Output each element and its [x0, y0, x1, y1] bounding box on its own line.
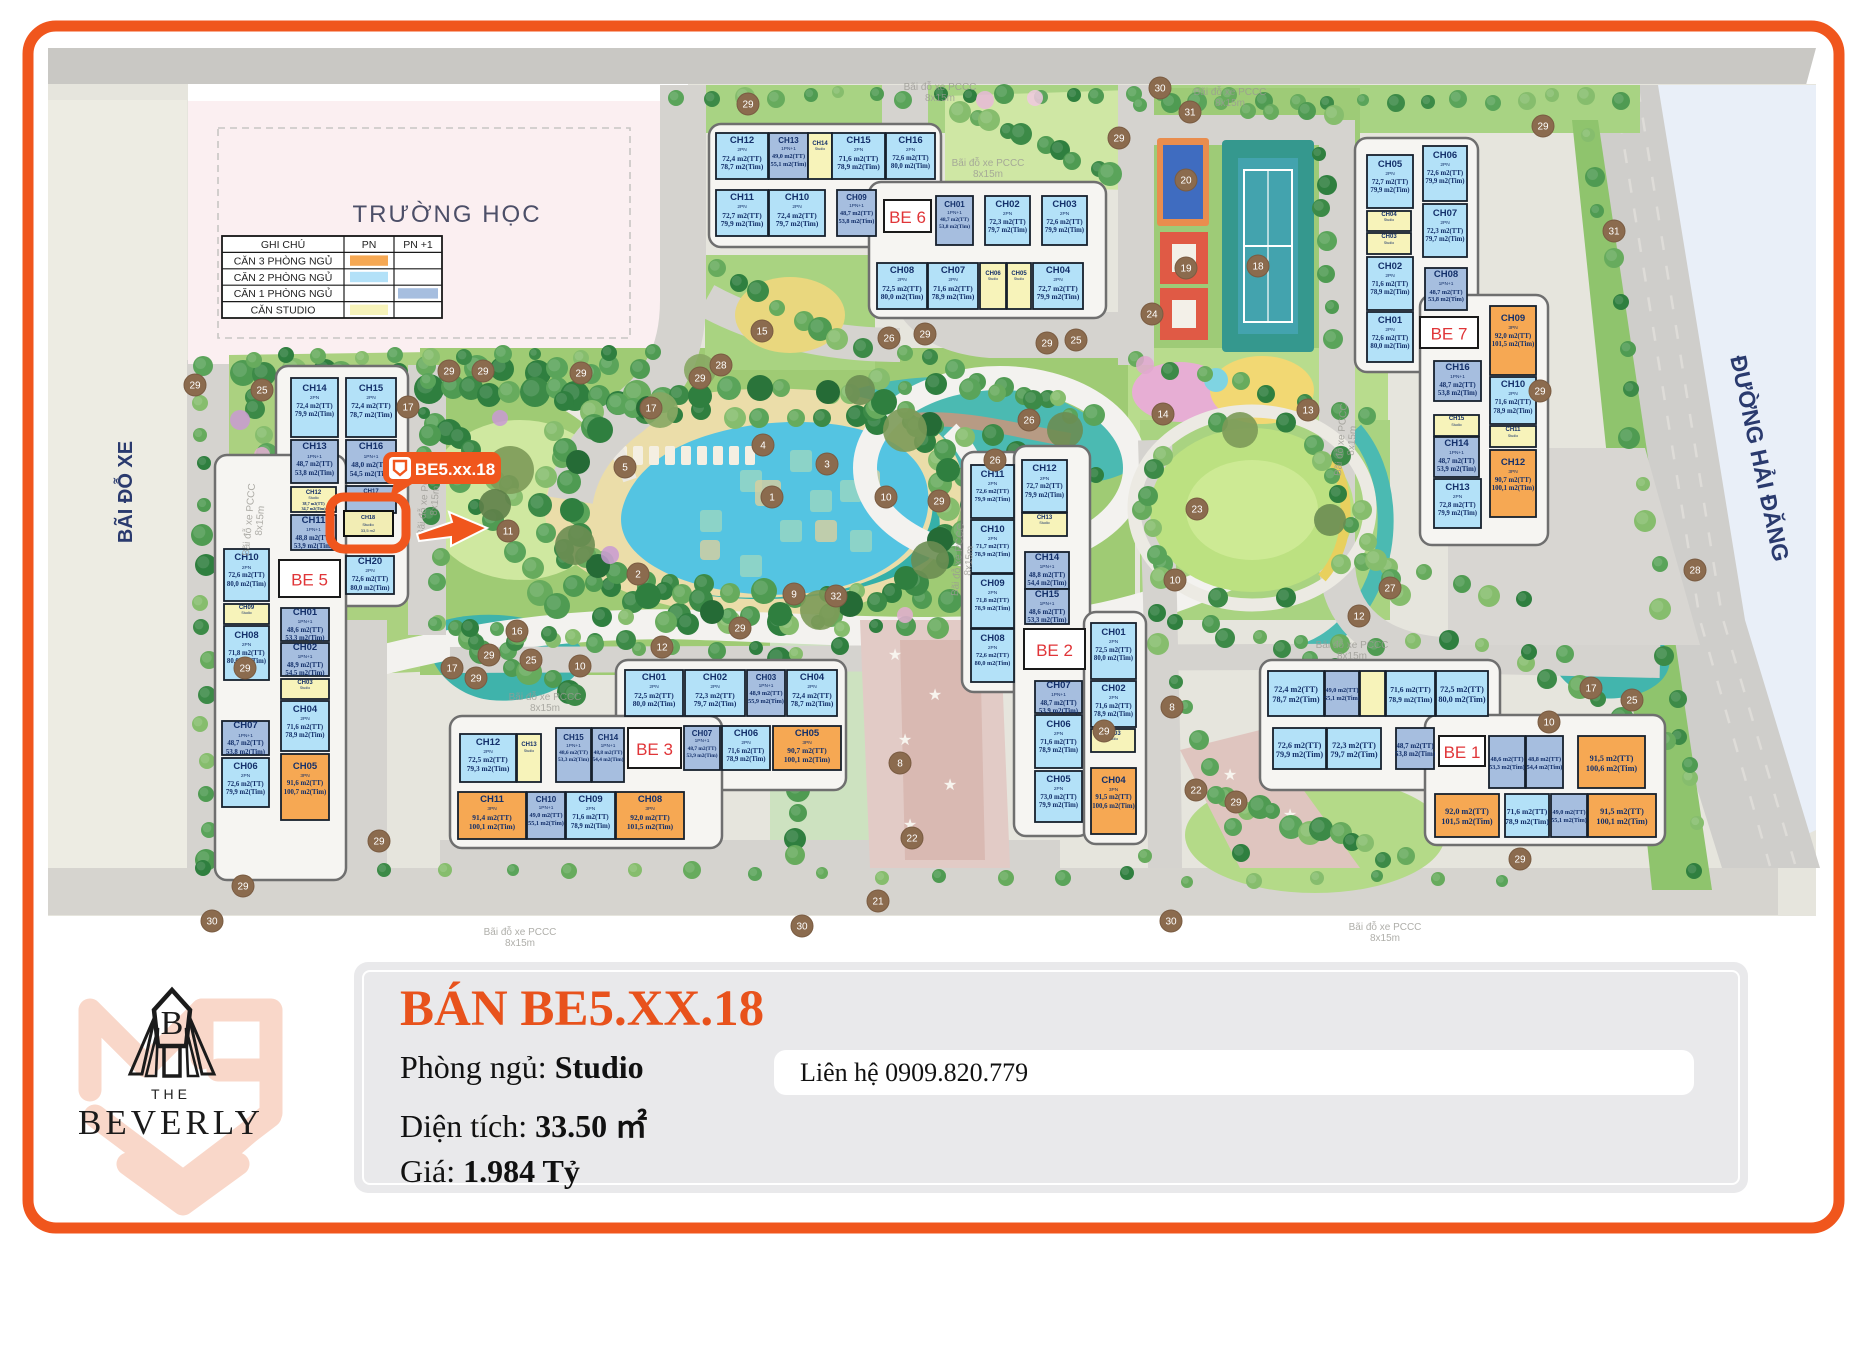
svg-text:72,6 m2(TT): 72,6 m2(TT) — [892, 155, 928, 162]
svg-text:91,4 m2(TT): 91,4 m2(TT) — [472, 813, 512, 822]
svg-text:1PN+1: 1PN+1 — [1449, 450, 1464, 456]
svg-text:71,6 m2(TT): 71,6 m2(TT) — [728, 748, 764, 755]
svg-text:CH04: CH04 — [293, 704, 318, 715]
svg-text:2PN: 2PN — [1060, 211, 1070, 217]
svg-text:CĂN 2 PHÒNG NGỦ: CĂN 2 PHÒNG NGỦ — [234, 271, 333, 284]
svg-text:33,5 m2: 33,5 m2 — [361, 528, 376, 533]
svg-text:78,9 m2(Tim): 78,9 m2(Tim) — [1370, 289, 1409, 296]
svg-text:CH10: CH10 — [536, 795, 557, 804]
svg-text:100,6 m2(Tim): 100,6 m2(Tim) — [1092, 803, 1135, 810]
svg-text:CĂN STUDIO: CĂN STUDIO — [251, 304, 316, 317]
svg-text:72,7 m2(TT): 72,7 m2(TT) — [1026, 483, 1062, 490]
svg-text:20: 20 — [1180, 176, 1192, 187]
svg-text:8x15m: 8x15m — [1370, 933, 1400, 944]
svg-text:53,9 m2(Tim): 53,9 m2(Tim) — [1039, 708, 1078, 715]
svg-text:2PN: 2PN — [1054, 731, 1064, 737]
svg-text:79,9 m2(Tim): 79,9 m2(Tim) — [1039, 802, 1078, 809]
svg-text:79,7 m2(Tim): 79,7 m2(Tim) — [694, 699, 737, 708]
svg-text:80,0 m2(Tim): 80,0 m2(Tim) — [227, 581, 266, 588]
svg-text:72,6 m2(TT): 72,6 m2(TT) — [976, 652, 1009, 659]
svg-text:32: 32 — [830, 592, 842, 603]
svg-text:2PN: 2PN — [241, 773, 251, 779]
svg-text:CH03: CH03 — [756, 673, 777, 682]
svg-text:72,8 m2(TT): 72,8 m2(TT) — [1439, 502, 1475, 509]
svg-text:54,4 m2(Tim): 54,4 m2(Tim) — [1527, 764, 1563, 771]
svg-text:CH03: CH03 — [1052, 199, 1076, 210]
svg-text:2PN: 2PN — [897, 277, 907, 283]
svg-text:CH15: CH15 — [1449, 416, 1465, 422]
svg-text:Bãi đỗ xe PCCC: Bãi đỗ xe PCCC — [509, 690, 582, 703]
svg-text:79,9 m2(Tim): 79,9 m2(Tim) — [721, 219, 764, 228]
svg-text:90,7 m2(TT): 90,7 m2(TT) — [787, 746, 827, 755]
svg-text:78,9 m2(Tim): 78,9 m2(Tim) — [571, 823, 610, 830]
svg-text:29: 29 — [1041, 339, 1053, 350]
svg-text:BE 3: BE 3 — [636, 740, 673, 759]
svg-text:CĂN 1 PHÒNG NGỦ: CĂN 1 PHÒNG NGỦ — [234, 287, 333, 300]
svg-text:72,6 m2(TT): 72,6 m2(TT) — [1372, 335, 1408, 342]
svg-text:★: ★ — [888, 647, 902, 664]
svg-text:17: 17 — [645, 404, 657, 415]
svg-text:CH02: CH02 — [1101, 683, 1125, 694]
svg-text:71,6 m2(TT): 71,6 m2(TT) — [1507, 807, 1548, 816]
svg-text:2PN: 2PN — [586, 806, 596, 812]
svg-text:10: 10 — [574, 662, 586, 673]
svg-text:BÃI ĐỖ XE: BÃI ĐỖ XE — [113, 441, 137, 543]
svg-text:CH14: CH14 — [1444, 438, 1469, 449]
svg-text:30: 30 — [1154, 84, 1166, 95]
svg-text:5: 5 — [622, 463, 628, 474]
svg-text:2PN: 2PN — [1453, 494, 1463, 500]
svg-text:55,1 m2(Tim): 55,1 m2(Tim) — [1324, 695, 1360, 702]
svg-text:CH16: CH16 — [898, 135, 922, 146]
svg-text:1PN+1: 1PN+1 — [566, 743, 581, 749]
svg-text:CH01: CH01 — [1101, 627, 1126, 638]
svg-text:31: 31 — [1184, 108, 1196, 119]
svg-text:72,3 m2(TT): 72,3 m2(TT) — [1427, 228, 1463, 235]
svg-text:53,8 m2(Tim): 53,8 m2(Tim) — [1428, 296, 1464, 303]
svg-text:4: 4 — [760, 441, 766, 452]
svg-text:53,3 m2(Tim): 53,3 m2(Tim) — [285, 635, 324, 642]
svg-text:29: 29 — [734, 624, 746, 635]
svg-text:48,6 m2(TT): 48,6 m2(TT) — [559, 749, 588, 756]
svg-text:CH16: CH16 — [359, 441, 383, 452]
svg-text:BE 1: BE 1 — [1444, 743, 1481, 762]
svg-text:10: 10 — [880, 493, 892, 504]
svg-text:CH18: CH18 — [361, 515, 375, 521]
svg-text:BE 6: BE 6 — [889, 208, 926, 227]
svg-text:CH03: CH03 — [1381, 234, 1397, 240]
svg-text:78,7 m2(Tim): 78,7 m2(Tim) — [721, 162, 764, 171]
svg-text:2PN: 2PN — [807, 684, 817, 690]
svg-text:CH14: CH14 — [302, 383, 327, 394]
svg-text:1: 1 — [769, 493, 775, 504]
svg-text:53,8 m2(Tim): 53,8 m2(Tim) — [295, 470, 334, 477]
svg-text:23: 23 — [1191, 505, 1203, 516]
svg-text:78,9 m2(Tim): 78,9 m2(Tim) — [975, 605, 1011, 612]
svg-text:CH12: CH12 — [730, 135, 754, 146]
svg-text:1PN+1: 1PN+1 — [947, 210, 962, 216]
svg-text:2PN: 2PN — [1385, 273, 1395, 279]
svg-text:29: 29 — [919, 330, 931, 341]
svg-text:29: 29 — [477, 367, 489, 378]
svg-text:72,6 m2(TT): 72,6 m2(TT) — [228, 572, 264, 579]
svg-text:CH15: CH15 — [563, 733, 584, 742]
svg-text:71,6 m2(TT): 71,6 m2(TT) — [287, 724, 323, 731]
svg-text:53,3 m2(Tim): 53,3 m2(Tim) — [1489, 764, 1525, 771]
svg-text:78,9 m2(Tim): 78,9 m2(Tim) — [1094, 711, 1133, 718]
svg-text:101,5 m2(Tim): 101,5 m2(Tim) — [1492, 341, 1535, 348]
svg-text:79,9 m2(Tim): 79,9 m2(Tim) — [975, 496, 1011, 503]
svg-text:54,4 m2(Tim): 54,4 m2(Tim) — [592, 756, 623, 763]
svg-text:72,5 m2(TT): 72,5 m2(TT) — [1095, 647, 1131, 654]
svg-text:Bãi đỗ xe PCCC: Bãi đỗ xe PCCC — [904, 80, 977, 93]
svg-text:1PN+1: 1PN+1 — [1040, 601, 1055, 607]
svg-text:2PN: 2PN — [988, 645, 998, 651]
svg-text:48,7 m2(TT): 48,7 m2(TT) — [940, 216, 969, 223]
svg-text:79,9 m2(Tim): 79,9 m2(Tim) — [1370, 187, 1409, 194]
svg-text:79,9 m2(Tim): 79,9 m2(Tim) — [1037, 292, 1080, 301]
svg-text:CH07: CH07 — [692, 729, 713, 738]
svg-text:71,6 m2(TT): 71,6 m2(TT) — [1372, 281, 1408, 288]
svg-text:29: 29 — [443, 367, 455, 378]
svg-text:72,6 m2(TT): 72,6 m2(TT) — [1046, 219, 1082, 226]
svg-text:3PN: 3PN — [1109, 787, 1119, 793]
svg-text:26: 26 — [1023, 416, 1035, 427]
svg-text:1PN+1: 1PN+1 — [849, 203, 864, 209]
svg-text:2PN: 2PN — [1054, 786, 1064, 792]
svg-text:2PN: 2PN — [792, 204, 802, 210]
svg-text:2PN: 2PN — [906, 147, 916, 153]
svg-text:CH14: CH14 — [1035, 552, 1060, 563]
svg-text:53,9 m2(Tim): 53,9 m2(Tim) — [1437, 466, 1476, 473]
svg-text:55,1 m2(Tim): 55,1 m2(Tim) — [1551, 817, 1587, 824]
svg-text:80,0 m2(Tim): 80,0 m2(Tim) — [891, 163, 930, 170]
svg-text:48,7 m2(TT): 48,7 m2(TT) — [1439, 382, 1475, 389]
svg-text:29: 29 — [1514, 855, 1526, 866]
svg-text:PN: PN — [362, 239, 377, 251]
svg-text:9: 9 — [791, 590, 797, 601]
svg-text:48,8 m2(TT): 48,8 m2(TT) — [594, 749, 623, 756]
svg-text:29: 29 — [483, 651, 495, 662]
svg-text:78,9 m2(Tim): 78,9 m2(Tim) — [932, 292, 975, 301]
svg-text:55,1 m2(Tim): 55,1 m2(Tim) — [528, 820, 564, 827]
svg-text:8x15m: 8x15m — [925, 93, 955, 104]
svg-text:29: 29 — [694, 374, 706, 385]
svg-text:92,0 m2(TT): 92,0 m2(TT) — [630, 813, 670, 822]
svg-text:49,0 m2(TT): 49,0 m2(TT) — [1553, 809, 1586, 816]
svg-text:48,7 m2(TT): 48,7 m2(TT) — [296, 461, 332, 468]
svg-text:25: 25 — [1626, 696, 1638, 707]
svg-text:54,4 m2(Tim): 54,4 m2(Tim) — [1027, 580, 1066, 587]
svg-text:CH04: CH04 — [800, 672, 825, 683]
svg-text:Bãi đỗ xe PCCC: Bãi đỗ xe PCCC — [952, 156, 1025, 169]
svg-text:Bãi đỗ xe PCCC: Bãi đỗ xe PCCC — [1316, 638, 1389, 651]
svg-text:29: 29 — [742, 100, 754, 111]
svg-text:CH05: CH05 — [795, 728, 820, 739]
svg-text:100,7 m2(Tim): 100,7 m2(Tim) — [284, 789, 327, 796]
svg-text:21: 21 — [872, 897, 884, 908]
svg-text:79,9 m2(Tim): 79,9 m2(Tim) — [1276, 750, 1323, 759]
svg-text:25: 25 — [525, 656, 537, 667]
svg-text:12: 12 — [656, 643, 668, 654]
svg-text:CH09: CH09 — [1501, 313, 1525, 324]
svg-text:BE 2: BE 2 — [1036, 641, 1073, 660]
svg-text:71,6 m2(TT): 71,6 m2(TT) — [1495, 399, 1531, 406]
svg-text:72,6 m2(TT): 72,6 m2(TT) — [1427, 170, 1463, 177]
svg-text:78,9 m2(Tim): 78,9 m2(Tim) — [1389, 695, 1433, 704]
svg-text:55,9 m2(Tim): 55,9 m2(Tim) — [748, 698, 784, 705]
svg-text:B: B — [161, 1005, 184, 1042]
svg-text:48,6 m2(TT): 48,6 m2(TT) — [1491, 756, 1524, 763]
svg-text:48,6 m2(TT): 48,6 m2(TT) — [287, 627, 323, 634]
svg-text:53,3 m2(Tim): 53,3 m2(Tim) — [1027, 617, 1066, 624]
svg-text:2PN: 2PN — [1003, 211, 1013, 217]
svg-text:2PN: 2PN — [649, 684, 659, 690]
svg-text:1PN+1: 1PN+1 — [601, 743, 616, 749]
svg-text:25: 25 — [1070, 336, 1082, 347]
svg-text:TRƯỜNG HỌC: TRƯỜNG HỌC — [352, 201, 541, 228]
svg-text:2PN: 2PN — [741, 740, 751, 746]
svg-text:29: 29 — [933, 497, 945, 508]
svg-text:1PN+1: 1PN+1 — [1051, 692, 1066, 698]
svg-text:2PN: 2PN — [1508, 391, 1518, 397]
svg-text:53,9 m2(Tim): 53,9 m2(Tim) — [686, 752, 717, 759]
svg-text:1PN+1: 1PN+1 — [1439, 281, 1454, 287]
svg-text:91,6 m2(TT): 91,6 m2(TT) — [287, 780, 323, 787]
svg-text:CH16: CH16 — [1445, 362, 1469, 373]
svg-text:CH05: CH05 — [1046, 774, 1071, 785]
svg-text:18: 18 — [1252, 262, 1264, 273]
svg-text:CH06: CH06 — [1046, 719, 1070, 730]
svg-text:100,1 m2(Tim): 100,1 m2(Tim) — [784, 755, 831, 764]
svg-text:3PN: 3PN — [300, 773, 310, 779]
svg-text:CH11: CH11 — [480, 794, 504, 805]
svg-text:53,9 m2(Tim): 53,9 m2(Tim) — [294, 543, 333, 550]
svg-text:2PN: 2PN — [365, 568, 375, 574]
svg-text:CH01: CH01 — [944, 200, 965, 209]
svg-text:79,7 m2(Tim): 79,7 m2(Tim) — [1330, 750, 1377, 759]
svg-text:92,0 m2(TT): 92,0 m2(TT) — [1495, 333, 1531, 340]
svg-text:1PN+1: 1PN+1 — [298, 619, 313, 625]
svg-text:91,5 m2(TT): 91,5 m2(TT) — [1600, 807, 1644, 816]
svg-text:26: 26 — [989, 456, 1001, 467]
svg-text:Studio: Studio — [1014, 277, 1024, 281]
svg-text:2PN: 2PN — [854, 147, 864, 153]
svg-text:★: ★ — [943, 777, 957, 794]
svg-text:29: 29 — [237, 882, 249, 893]
svg-text:2PN: 2PN — [737, 204, 747, 210]
svg-text:3PN: 3PN — [1508, 469, 1518, 475]
svg-text:54,5 m2(Tim): 54,5 m2(Tim) — [285, 670, 324, 677]
svg-text:Studio: Studio — [1508, 434, 1518, 438]
svg-text:78,7 m2(Tim): 78,7 m2(Tim) — [350, 410, 393, 419]
svg-text:72,7 m2(TT): 72,7 m2(TT) — [1372, 179, 1408, 186]
svg-text:79,9 m2(Tim): 79,9 m2(Tim) — [1045, 227, 1084, 234]
svg-text:CH08: CH08 — [1434, 269, 1458, 280]
svg-text:49,0 m2(TT): 49,0 m2(TT) — [772, 153, 805, 160]
svg-text:71,6 m2(TT): 71,6 m2(TT) — [1040, 739, 1076, 746]
svg-text:CH14: CH14 — [598, 733, 619, 742]
svg-text:29: 29 — [1230, 798, 1242, 809]
svg-text:Bãi đỗ xe PCCC: Bãi đỗ xe PCCC — [1194, 85, 1267, 98]
svg-text:72,6 m2(TT): 72,6 m2(TT) — [352, 576, 388, 583]
svg-text:1PN+1: 1PN+1 — [307, 454, 322, 460]
svg-text:Studio: Studio — [988, 277, 998, 281]
svg-text:92,0 m2(TT): 92,0 m2(TT) — [1445, 807, 1489, 816]
svg-text:Studio: Studio — [1384, 218, 1394, 222]
svg-text:72,4 m2(TT): 72,4 m2(TT) — [351, 401, 391, 410]
svg-text:CH11: CH11 — [302, 515, 326, 526]
svg-text:CH05: CH05 — [1378, 159, 1403, 170]
svg-text:55,1 m2(Tim): 55,1 m2(Tim) — [771, 161, 807, 168]
svg-text:78,9 m2(Tim): 78,9 m2(Tim) — [1039, 747, 1078, 754]
svg-text:78,9 m2(Tim): 78,9 m2(Tim) — [1493, 408, 1532, 415]
svg-text:CH11: CH11 — [1505, 427, 1521, 433]
svg-text:3PN: 3PN — [645, 806, 655, 812]
svg-text:8x15m: 8x15m — [973, 169, 1003, 180]
svg-text:8x15m: 8x15m — [1337, 651, 1367, 662]
svg-text:72,4 m2(TT): 72,4 m2(TT) — [1274, 685, 1318, 694]
svg-text:Studio: Studio — [1451, 423, 1461, 427]
svg-text:CH20: CH20 — [358, 556, 382, 567]
svg-text:90,7 m2(TT): 90,7 m2(TT) — [1495, 477, 1531, 484]
svg-text:30: 30 — [1165, 917, 1177, 928]
svg-text:CH06: CH06 — [1433, 150, 1457, 161]
svg-text:48,7 m2(TT): 48,7 m2(TT) — [1396, 742, 1434, 750]
svg-text:80,0 m2(Tim): 80,0 m2(Tim) — [1094, 655, 1133, 662]
svg-text:Studio: Studio — [1039, 521, 1049, 525]
svg-text:48,6 m2(TT): 48,6 m2(TT) — [1029, 609, 1065, 616]
svg-text:Studio: Studio — [524, 749, 534, 753]
svg-text:78,9 m2(Tim): 78,9 m2(Tim) — [285, 732, 324, 739]
svg-text:53,8 m2(Tim): 53,8 m2(Tim) — [226, 749, 265, 756]
svg-text:48,7 m2(TT): 48,7 m2(TT) — [688, 745, 717, 752]
svg-text:16: 16 — [511, 627, 523, 638]
svg-text:100,1 m2(Tim): 100,1 m2(Tim) — [469, 822, 516, 831]
svg-text:2PN: 2PN — [1385, 171, 1395, 177]
svg-text:CH12: CH12 — [1501, 457, 1525, 468]
svg-text:2PN: 2PN — [310, 395, 320, 401]
svg-text:29: 29 — [1098, 727, 1110, 738]
svg-text:3: 3 — [824, 460, 830, 471]
svg-text:49,0 m2(TT): 49,0 m2(TT) — [1326, 687, 1359, 694]
svg-text:CH07: CH07 — [1046, 680, 1070, 691]
svg-text:CH10: CH10 — [1501, 379, 1525, 390]
svg-text:2PN: 2PN — [1040, 476, 1050, 482]
svg-text:80,0 m2(Tim): 80,0 m2(Tim) — [350, 585, 389, 592]
svg-text:Studio: Studio — [308, 496, 318, 500]
svg-text:1PN+1: 1PN+1 — [695, 738, 710, 744]
svg-text:CH13: CH13 — [778, 136, 799, 145]
svg-text:Studio: Studio — [1384, 241, 1394, 245]
svg-text:CH13: CH13 — [1445, 482, 1469, 493]
svg-text:CH15: CH15 — [359, 383, 384, 394]
svg-text:10: 10 — [1543, 718, 1555, 729]
svg-text:2PN: 2PN — [1440, 220, 1450, 226]
svg-text:80,0 m2(Tim): 80,0 m2(Tim) — [1438, 695, 1485, 704]
svg-text:100,1 m2(Tim): 100,1 m2(Tim) — [1596, 817, 1648, 826]
svg-text:53,8 m2(Tim): 53,8 m2(Tim) — [839, 218, 875, 225]
svg-text:GHI CHÚ: GHI CHÚ — [261, 238, 305, 251]
svg-text:17: 17 — [446, 664, 458, 675]
svg-text:CH07: CH07 — [941, 265, 965, 276]
svg-text:22: 22 — [1190, 786, 1202, 797]
svg-text:2PN: 2PN — [988, 536, 998, 542]
svg-text:72,4 m2(TT): 72,4 m2(TT) — [296, 403, 332, 410]
svg-text:CH08: CH08 — [234, 630, 258, 641]
svg-text:PN +1: PN +1 — [403, 239, 433, 251]
svg-text:19: 19 — [1180, 264, 1192, 275]
svg-text:48,8 m2(TT): 48,8 m2(TT) — [1029, 572, 1065, 579]
svg-text:53,8 m2(Tim): 53,8 m2(Tim) — [939, 223, 970, 230]
svg-text:101,5 m2(Tim): 101,5 m2(Tim) — [627, 822, 674, 831]
svg-text:29: 29 — [470, 674, 482, 685]
svg-text:30: 30 — [796, 922, 808, 933]
svg-text:3PN: 3PN — [1508, 325, 1518, 331]
svg-text:30: 30 — [206, 917, 218, 928]
svg-text:8x15m: 8x15m — [505, 938, 535, 949]
svg-text:Studio: Studio — [300, 686, 310, 690]
svg-text:48,7 m2(TT): 48,7 m2(TT) — [840, 210, 873, 217]
svg-text:8x15m: 8x15m — [1215, 98, 1245, 109]
svg-text:CH02: CH02 — [293, 642, 317, 653]
svg-text:71,6 m2(TT): 71,6 m2(TT) — [1390, 685, 1431, 694]
svg-text:79,7 m2(Tim): 79,7 m2(Tim) — [1425, 236, 1464, 243]
svg-text:1PN+1: 1PN+1 — [1450, 374, 1465, 380]
svg-text:CH13: CH13 — [521, 742, 537, 748]
svg-text:48,7 m2(TT): 48,7 m2(TT) — [1430, 289, 1463, 296]
svg-text:48,8 m2(TT): 48,8 m2(TT) — [1528, 756, 1561, 763]
svg-text:78,7 m2(Tim): 78,7 m2(Tim) — [791, 699, 834, 708]
svg-text:48,7 m2(TT): 48,7 m2(TT) — [227, 740, 263, 747]
svg-text:CĂN 3 PHÒNG NGỦ: CĂN 3 PHÒNG NGỦ — [234, 254, 333, 267]
svg-text:71,7 m2(TT): 71,7 m2(TT) — [976, 543, 1009, 550]
svg-text:★: ★ — [898, 732, 912, 749]
svg-text:CH10: CH10 — [785, 192, 809, 203]
svg-text:CH04: CH04 — [1101, 775, 1126, 786]
svg-text:★: ★ — [928, 687, 942, 704]
svg-text:28: 28 — [1689, 566, 1701, 577]
svg-text:2PN: 2PN — [242, 642, 252, 648]
svg-text:CH05: CH05 — [293, 761, 318, 772]
svg-text:1PN+1: 1PN+1 — [306, 527, 321, 533]
svg-text:CH08: CH08 — [638, 794, 662, 805]
svg-text:79,9 m2(Tim): 79,9 m2(Tim) — [1438, 510, 1477, 517]
svg-text:25: 25 — [256, 386, 268, 397]
svg-text:1PN+1: 1PN+1 — [539, 805, 554, 811]
svg-text:10: 10 — [1169, 576, 1181, 587]
svg-text:Studio: Studio — [241, 611, 251, 615]
svg-text:49,0 m2(TT): 49,0 m2(TT) — [530, 812, 563, 819]
svg-text:2PN: 2PN — [300, 716, 310, 722]
svg-text:1PN+1: 1PN+1 — [781, 146, 796, 152]
svg-text:29: 29 — [1537, 122, 1549, 133]
svg-text:27: 27 — [1384, 584, 1396, 595]
svg-text:17: 17 — [402, 403, 414, 414]
svg-text:11: 11 — [503, 527, 514, 538]
svg-text:CH15: CH15 — [1035, 589, 1060, 600]
svg-text:2PN: 2PN — [710, 684, 720, 690]
svg-text:72,6 m2(TT): 72,6 m2(TT) — [227, 781, 263, 788]
svg-text:8: 8 — [897, 759, 903, 770]
svg-text:48,7 m2(TT): 48,7 m2(TT) — [1438, 458, 1474, 465]
svg-text:22: 22 — [906, 834, 918, 845]
svg-text:78,9 m2(Tim): 78,9 m2(Tim) — [975, 551, 1011, 558]
svg-text:CH08: CH08 — [980, 633, 1004, 644]
svg-text:48,9 m2(TT): 48,9 m2(TT) — [287, 662, 323, 669]
svg-text:14: 14 — [1157, 410, 1169, 421]
svg-text:28: 28 — [715, 361, 727, 372]
